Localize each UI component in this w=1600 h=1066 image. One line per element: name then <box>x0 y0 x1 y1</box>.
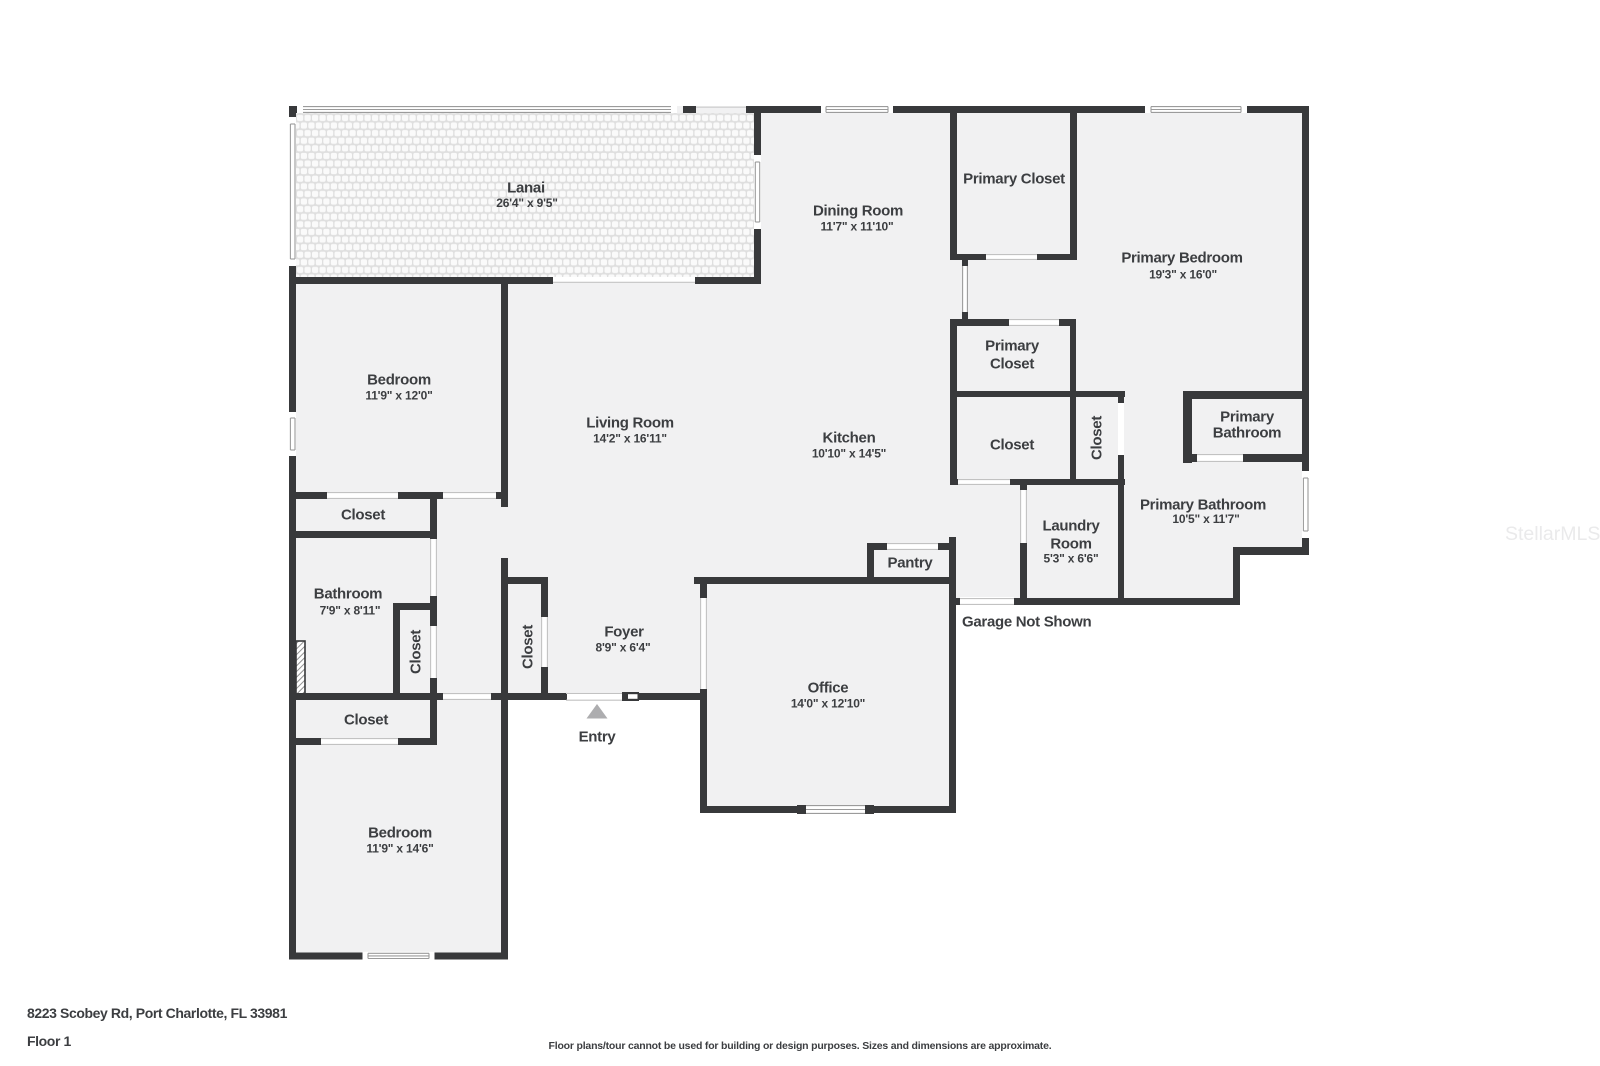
svg-text:Garage Not Shown: Garage Not Shown <box>962 614 1092 631</box>
svg-text:Closet: Closet <box>341 507 385 524</box>
svg-text:11'9" x 14'6": 11'9" x 14'6" <box>366 842 433 856</box>
svg-text:Bathroom: Bathroom <box>314 586 382 603</box>
svg-text:Room: Room <box>1050 536 1091 553</box>
svg-text:14'0" x 12'10": 14'0" x 12'10" <box>791 697 865 711</box>
svg-text:Foyer: Foyer <box>604 624 644 641</box>
svg-text:Closet: Closet <box>520 625 537 669</box>
svg-text:Floor 1: Floor 1 <box>27 1033 71 1049</box>
svg-text:5'3" x 6'6": 5'3" x 6'6" <box>1044 552 1099 566</box>
svg-text:8223 Scobey Rd, Port Charlotte: 8223 Scobey Rd, Port Charlotte, FL 33981 <box>27 1005 288 1021</box>
svg-text:Bathroom: Bathroom <box>1213 425 1281 442</box>
svg-text:Primary: Primary <box>985 338 1040 355</box>
svg-text:10'10" x 14'5": 10'10" x 14'5" <box>812 447 886 461</box>
svg-text:Laundry: Laundry <box>1042 518 1100 535</box>
svg-text:Primary Bathroom: Primary Bathroom <box>1140 497 1266 514</box>
svg-text:Lanai: Lanai <box>507 180 545 197</box>
svg-text:11'7" x 11'10": 11'7" x 11'10" <box>820 220 893 234</box>
svg-text:8'9" x 6'4": 8'9" x 6'4" <box>596 641 651 655</box>
svg-text:Kitchen: Kitchen <box>823 430 876 447</box>
svg-text:Pantry: Pantry <box>888 555 934 572</box>
svg-text:7'9" x 8'11": 7'9" x 8'11" <box>320 604 381 618</box>
svg-text:Living Room: Living Room <box>586 415 674 432</box>
svg-text:Floor plans/tour cannot be use: Floor plans/tour cannot be used for buil… <box>549 1040 1052 1052</box>
svg-text:Closet: Closet <box>990 356 1034 373</box>
svg-text:11'9" x 12'0": 11'9" x 12'0" <box>365 389 432 403</box>
svg-text:14'2" x 16'11": 14'2" x 16'11" <box>593 432 667 446</box>
svg-text:Bedroom: Bedroom <box>367 372 431 389</box>
svg-text:Closet: Closet <box>344 712 388 729</box>
svg-text:Entry: Entry <box>579 729 617 746</box>
svg-text:Closet: Closet <box>408 630 425 674</box>
svg-text:StellarMLS: StellarMLS <box>1505 523 1600 545</box>
svg-text:10'5" x 11'7": 10'5" x 11'7" <box>1172 512 1239 526</box>
svg-text:Primary: Primary <box>1220 409 1275 426</box>
svg-text:26'4" x 9'5": 26'4" x 9'5" <box>496 196 557 210</box>
svg-text:Office: Office <box>808 680 849 697</box>
svg-text:Bedroom: Bedroom <box>368 825 432 842</box>
svg-text:Closet: Closet <box>990 437 1034 454</box>
svg-text:Closet: Closet <box>1089 416 1106 460</box>
svg-text:Primary Bedroom: Primary Bedroom <box>1121 250 1242 267</box>
svg-text:Dining Room: Dining Room <box>813 203 903 220</box>
svg-text:Primary Closet: Primary Closet <box>963 171 1065 188</box>
svg-text:19'3" x 16'0": 19'3" x 16'0" <box>1149 268 1217 282</box>
